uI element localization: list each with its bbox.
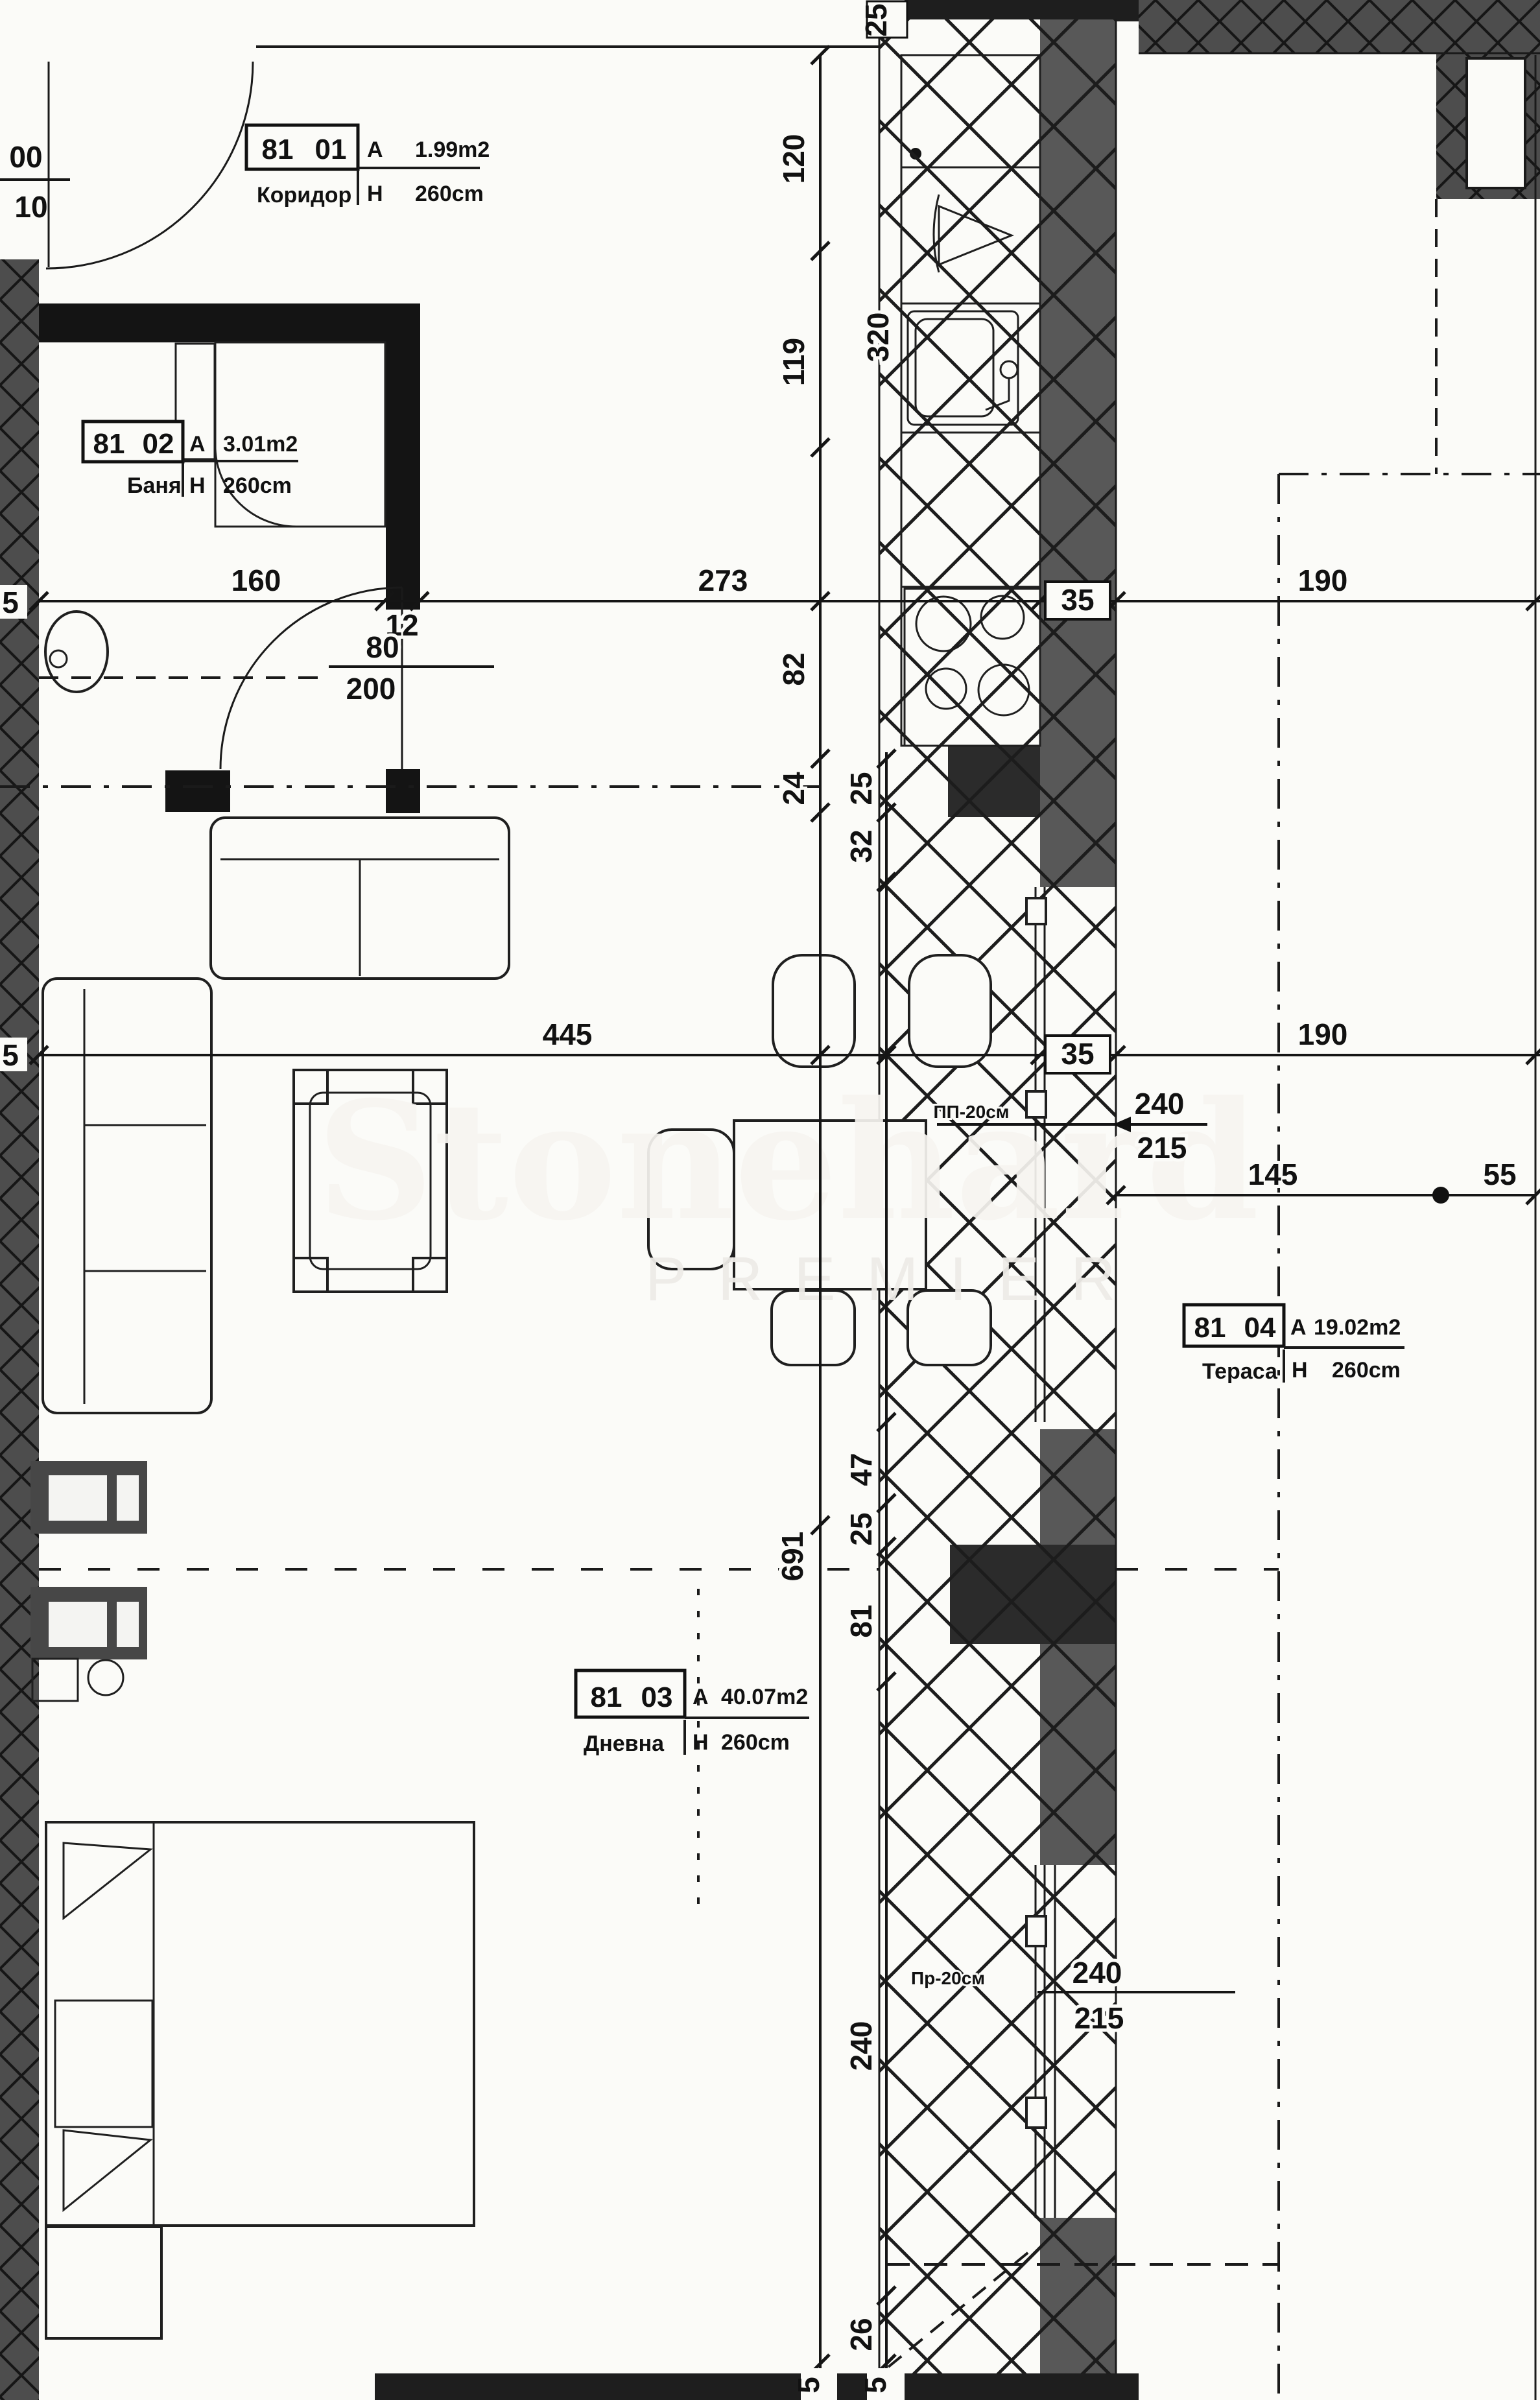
room-hall-area: 1.99m2 bbox=[415, 137, 490, 162]
room-living-num1: 81 bbox=[591, 1681, 622, 1713]
glass-handle-4 bbox=[1026, 2098, 1046, 2128]
bathroom bbox=[39, 303, 420, 813]
room-hall-num1: 81 bbox=[262, 134, 294, 165]
dim-24: 24 bbox=[777, 772, 811, 805]
room-living-h: H bbox=[693, 1730, 709, 1755]
dim-445: 445 bbox=[543, 1017, 593, 1051]
room-bath-h: H bbox=[189, 473, 206, 498]
room-bath-num2: 02 bbox=[143, 428, 174, 460]
room-terrace-h: H bbox=[1292, 1358, 1308, 1383]
bottom-band bbox=[375, 2373, 1139, 2400]
room-label-hall: 81 01 A 1.99m2 Коридор H 260cm bbox=[246, 125, 490, 208]
room-living-height: 260cm bbox=[721, 1730, 790, 1755]
room-terrace-num1: 81 bbox=[1194, 1312, 1226, 1344]
dim-top25: 25 bbox=[859, 3, 893, 36]
top-band bbox=[905, 0, 1139, 21]
dim-160: 160 bbox=[231, 564, 281, 597]
dim-190a: 190 bbox=[1298, 564, 1348, 597]
bed bbox=[46, 1822, 474, 2338]
room-bath-a: A bbox=[189, 432, 206, 457]
dim-80: 80 bbox=[366, 630, 399, 664]
floor-plan: Stonehard PREMIER bbox=[0, 0, 1540, 2400]
dim-200: 200 bbox=[346, 672, 396, 706]
dim-119: 119 bbox=[777, 338, 811, 386]
room-living-a: A bbox=[693, 1685, 709, 1709]
room-hall-a: A bbox=[367, 137, 383, 162]
glass-handle-1 bbox=[1026, 898, 1046, 924]
note-pp: ПП-20см bbox=[933, 1102, 1009, 1122]
room-bath-area: 3.01m2 bbox=[223, 432, 298, 457]
dim-190b: 190 bbox=[1298, 1017, 1348, 1051]
dim-120: 120 bbox=[777, 134, 811, 184]
dim-240b: 240 bbox=[1072, 1956, 1122, 1990]
dim-47: 47 bbox=[844, 1453, 878, 1486]
stool-2 bbox=[909, 955, 991, 1067]
dim-w5b: 5 bbox=[2, 1038, 19, 1072]
room-bath-name: Баня bbox=[127, 473, 182, 498]
dim-b5b: 5 bbox=[859, 2377, 892, 2394]
dim-55: 55 bbox=[1483, 1158, 1516, 1191]
stool-1 bbox=[773, 955, 855, 1067]
furniture bbox=[30, 818, 991, 2338]
bed-outline bbox=[46, 1822, 474, 2226]
coffee-table-leg-3 bbox=[294, 1258, 327, 1292]
wall-units bbox=[30, 1461, 147, 1701]
room-living-area: 40.07m2 bbox=[721, 1685, 808, 1709]
room-terrace-num2: 04 bbox=[1244, 1312, 1276, 1344]
dim-215a: 215 bbox=[1137, 1131, 1187, 1165]
coffee-table-leg-4 bbox=[413, 1258, 447, 1292]
dim-215b: 215 bbox=[1074, 2001, 1124, 2035]
wall-unit-1-panel-b bbox=[117, 1475, 139, 1521]
room-hall-h: H bbox=[367, 182, 383, 206]
room-label-terrace: 81 04 A 19.02m2 Тераса H 260cm bbox=[1184, 1305, 1404, 1384]
dim-w5a: 5 bbox=[2, 586, 19, 619]
room-terrace-name: Тераса bbox=[1202, 1359, 1278, 1384]
dim-273: 273 bbox=[698, 564, 748, 597]
room-hall-name: Коридор bbox=[257, 183, 351, 208]
room-terrace-a: A bbox=[1290, 1315, 1307, 1340]
dim-35a: 35 bbox=[1061, 583, 1094, 617]
dim-32: 32 bbox=[844, 829, 878, 862]
watermark-sub: PREMIER bbox=[645, 1244, 1146, 1314]
glass-handle-3 bbox=[1026, 1916, 1046, 1946]
dim-dot bbox=[1432, 1187, 1449, 1204]
dim-00: 00 bbox=[9, 140, 42, 174]
dim-145: 145 bbox=[1248, 1158, 1298, 1191]
bath-wall-right bbox=[386, 303, 420, 610]
room-hall-num2: 01 bbox=[315, 134, 347, 165]
entry-door-arc bbox=[46, 62, 253, 268]
watermark-brand: Stonehard bbox=[316, 1065, 1259, 1256]
bedside-bench bbox=[46, 2227, 161, 2338]
floor-lamp bbox=[88, 1660, 123, 1695]
bath-door-post bbox=[386, 769, 420, 813]
small-cabinet bbox=[32, 1659, 78, 1701]
entry-door bbox=[46, 62, 253, 268]
room-label-bath: 81 02 A 3.01m2 Баня H 260cm bbox=[83, 422, 298, 498]
room-terrace-height: 260cm bbox=[1332, 1358, 1401, 1383]
dim-82: 82 bbox=[777, 652, 811, 685]
dim-25b: 25 bbox=[844, 1512, 878, 1545]
dim-26: 26 bbox=[844, 2318, 878, 2351]
note-pr: Пр-20см bbox=[911, 1968, 985, 1988]
room-living-num2: 03 bbox=[641, 1681, 673, 1713]
sofa-side bbox=[43, 979, 211, 1413]
left-wall bbox=[0, 259, 39, 2400]
room-terrace-area: 19.02m2 bbox=[1314, 1315, 1401, 1340]
dim-240a: 240 bbox=[1135, 1087, 1185, 1121]
room-label-living: 81 03 A 40.07m2 Дневна H 260cm bbox=[576, 1670, 809, 1756]
wall-unit-1-panel-a bbox=[49, 1475, 107, 1521]
wall-unit-2-panel-a bbox=[49, 1602, 107, 1647]
dim-10: 10 bbox=[14, 190, 47, 224]
dim-691: 691 bbox=[776, 1532, 809, 1582]
dim-b5a: 5 bbox=[792, 2377, 825, 2394]
bath-wall-stub bbox=[165, 770, 230, 812]
dim-25a: 25 bbox=[844, 772, 878, 805]
dim-320: 320 bbox=[861, 313, 895, 362]
room-living-name: Дневна bbox=[584, 1731, 665, 1756]
bath-wall-top bbox=[39, 303, 420, 342]
room-hall-height: 260cm bbox=[415, 182, 484, 206]
dim-35b: 35 bbox=[1061, 1037, 1094, 1071]
room-bath-height: 260cm bbox=[223, 473, 292, 498]
dim-81: 81 bbox=[844, 1604, 878, 1637]
room-bath-num1: 81 bbox=[93, 428, 125, 460]
watermark: Stonehard PREMIER bbox=[316, 1065, 1259, 1314]
wall-unit-2-panel-b bbox=[117, 1602, 139, 1647]
dim-240v: 240 bbox=[844, 2021, 878, 2071]
top-right-window bbox=[1467, 58, 1525, 188]
